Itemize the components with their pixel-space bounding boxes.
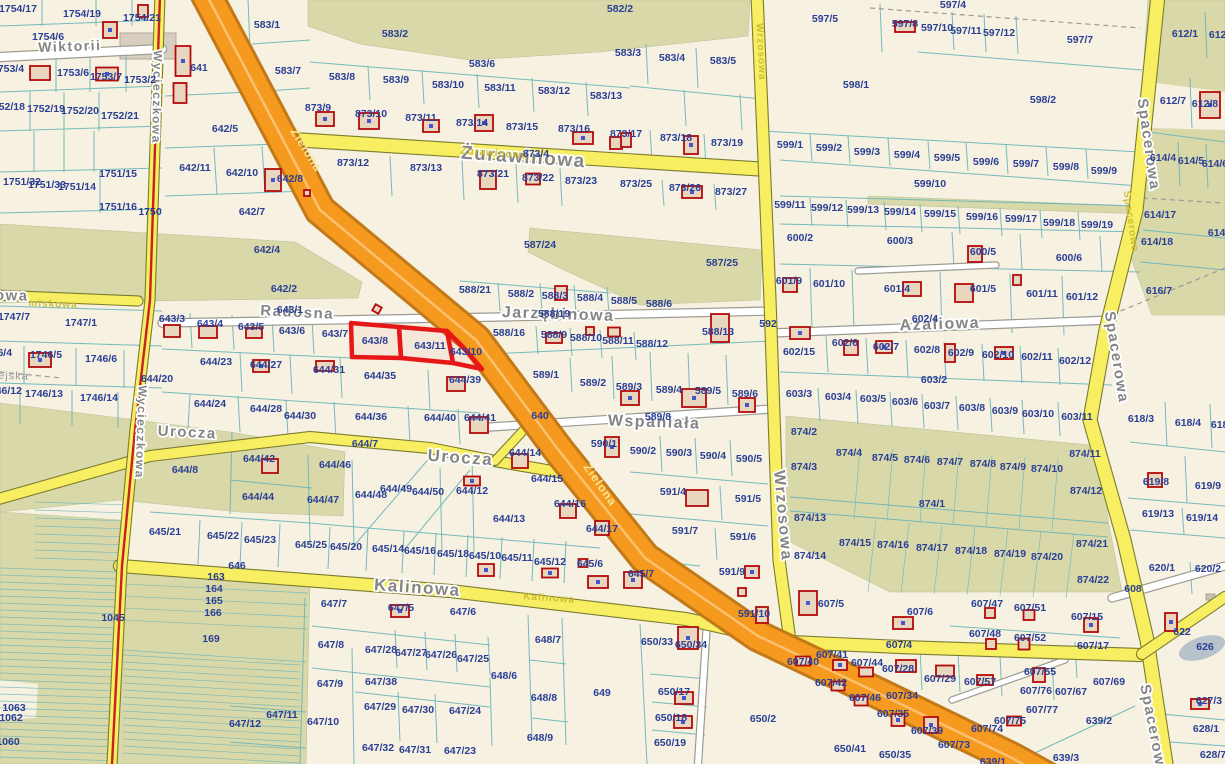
parcel-label: 874/10 <box>1031 463 1063 475</box>
address-point <box>470 479 474 483</box>
parcel-label: 873/19 <box>711 137 743 149</box>
parcel-label: 583/6 <box>469 58 495 70</box>
parcel-label: 603/8 <box>959 402 985 414</box>
parcel-label: 1746/6 <box>85 353 117 365</box>
parcel-label: 642/5 <box>212 123 238 135</box>
parcel-label: 588/10 <box>570 332 602 344</box>
building <box>588 576 608 588</box>
parcel-label: 643/3 <box>159 313 185 325</box>
parcel-label: 644/20 <box>141 373 173 385</box>
parcel-label: 1752/21 <box>101 110 139 122</box>
street-label: miskowa <box>28 298 78 311</box>
parcel-label: 620/2 <box>1195 563 1221 575</box>
parcel-label: 873/25 <box>620 178 652 190</box>
parcel-label: 647/28 <box>365 644 397 656</box>
building <box>103 22 117 38</box>
parcel-label: 642/4 <box>254 244 280 256</box>
parcel-label: 583/8 <box>329 71 355 83</box>
parcel-label: 602/9 <box>948 347 974 359</box>
parcel-label: 647/26 <box>425 649 457 661</box>
map-canvas[interactable]: WiktoriiŻurawinowaŻurawinowaJarzębinowaR… <box>0 0 1225 764</box>
parcel-label: 607/5 <box>818 598 844 610</box>
parcel-label: 644/7 <box>352 438 378 450</box>
parcel-label: 1746/14 <box>80 392 118 404</box>
cadastral-map[interactable]: WiktoriiŻurawinowaŻurawinowaJarzębinowaR… <box>0 0 1225 764</box>
parcel-label: 589/8 <box>645 411 671 423</box>
parcel-label: 599/10 <box>914 178 946 190</box>
parcel-label: 607/75 <box>994 715 1026 727</box>
parcel-label: 645/14 <box>372 543 404 555</box>
parcel-label: 599/6 <box>973 156 999 168</box>
parcel-label: 164 <box>205 583 223 595</box>
parcel-label: 600/5 <box>970 246 996 258</box>
parcel-label: 640 <box>531 410 549 422</box>
parcel-label: 873/14 <box>456 117 488 129</box>
parcel-label: 643/1 <box>277 304 303 316</box>
parcel-label: 597/7 <box>1067 34 1093 46</box>
parcel-label: 644/16 <box>554 498 586 510</box>
parcel-label: 645/23 <box>244 534 276 546</box>
parcel-label: 602/4 <box>912 313 938 325</box>
parcel-label: 1751/15 <box>99 168 137 180</box>
address-point <box>596 580 600 584</box>
parcel-label: 1750 <box>138 206 162 218</box>
parcel-label: 628/7 <box>1200 749 1225 761</box>
parcel-label: 588/11 <box>602 335 634 347</box>
parcel-label: 588/6 <box>646 298 672 310</box>
parcel-label: 619/14 <box>1186 512 1218 524</box>
parcel-label: 599/9 <box>1091 165 1117 177</box>
building <box>1013 275 1021 285</box>
parcel-label: 647/29 <box>364 701 396 713</box>
parcel-label: 592 <box>759 318 777 330</box>
parcel-label: 614/18 <box>1141 236 1173 248</box>
parcel-label: 644/13 <box>493 513 525 525</box>
parcel-label: 588/13 <box>702 326 734 338</box>
parcel-label: 597/11 <box>950 25 982 37</box>
parcel-label: 645/25 <box>295 539 327 551</box>
parcel-label: 644/46 <box>319 459 351 471</box>
parcel-label: 583/5 <box>710 55 736 67</box>
parcel-label: 1746/4 <box>0 347 12 359</box>
parcel-label: 650/17 <box>658 686 690 698</box>
parcel-label: 874/12 <box>1070 485 1102 497</box>
address-point <box>1169 620 1173 624</box>
parcel-label: 591/4 <box>660 486 686 498</box>
parcel-label: 597/5 <box>812 13 838 25</box>
address-point <box>838 663 842 667</box>
parcel-label: 603/7 <box>924 400 950 412</box>
parcel-label: 601/11 <box>1026 288 1058 300</box>
parcel-label: 588/9 <box>541 329 567 341</box>
parcel-label: 602/8 <box>914 344 940 356</box>
parcel-label: 645/21 <box>149 526 181 538</box>
street-label: Wycieczkowa <box>149 50 165 144</box>
parcel-label: 643/4 <box>197 318 223 330</box>
parcel-label: 607/77 <box>1026 704 1058 716</box>
parcel-label: 650/19 <box>654 737 686 749</box>
parcel-label: 645/7 <box>628 568 654 580</box>
parcel-label: 874/8 <box>970 458 996 470</box>
parcel-label: 587/25 <box>706 257 738 269</box>
parcel-label: 603/5 <box>860 393 886 405</box>
parcel-label: 607/76 <box>1020 685 1052 697</box>
parcel-label: 600/3 <box>887 235 913 247</box>
parcel-label: 619/9 <box>1195 480 1221 492</box>
parcel-label: 607/46 <box>849 692 881 704</box>
parcel-label: 601/12 <box>1066 291 1098 303</box>
parcel-label: 642/11 <box>179 162 211 174</box>
building <box>686 490 708 506</box>
address-point <box>181 59 185 63</box>
building <box>833 660 847 670</box>
parcel-label: 874/19 <box>994 548 1026 560</box>
parcel-label: 644/14 <box>509 447 541 459</box>
parcel-label: 873/9 <box>305 102 331 114</box>
parcel-label: 607/67 <box>1055 686 1087 698</box>
parcel-label: 599/14 <box>884 206 916 218</box>
parcel-label: 1062 <box>0 712 23 724</box>
parcel-label: 620/1 <box>1149 562 1175 574</box>
parcel-label: 647/24 <box>449 705 481 717</box>
parcel-label: 647/11 <box>266 709 298 721</box>
parcel-label: 1746/13 <box>25 388 63 400</box>
parcel-label: 644/24 <box>194 398 226 410</box>
parcel-label: 591/9 <box>719 566 745 578</box>
parcel-label: 1746/5 <box>30 349 62 361</box>
parcel-label: 607/39 <box>911 725 943 737</box>
parcel-label: 603/11 <box>1061 411 1093 423</box>
parcel-label: 603/10 <box>1022 408 1054 420</box>
parcel-label: 614/4 <box>1150 152 1176 164</box>
parcel-label: 597/12 <box>983 27 1015 39</box>
address-point <box>581 136 585 140</box>
parcel-label: 1045 <box>101 612 125 624</box>
parcel-label: 601/9 <box>776 275 802 287</box>
parcel-label: 588/12 <box>636 338 668 350</box>
parcel-label: 597/8 <box>892 18 918 30</box>
parcel-label: 583/12 <box>538 85 570 97</box>
parcel-label: 619/13 <box>1142 508 1174 520</box>
parcel-label: 644/28 <box>250 403 282 415</box>
parcel-label: 163 <box>207 571 225 583</box>
parcel-label: 599/19 <box>1081 219 1113 231</box>
parcel-label: 607/6 <box>907 606 933 618</box>
parcel-label: 647/10 <box>307 716 339 728</box>
parcel-label: 1751/14 <box>58 181 96 193</box>
parcel-label: 588/21 <box>459 284 491 296</box>
parcel-label: 607/29 <box>924 673 956 685</box>
parcel-label: 589/5 <box>695 385 721 397</box>
parcel-label: 874/6 <box>904 454 930 466</box>
parcel-label: 873/10 <box>355 108 387 120</box>
parcel-label: 603/2 <box>921 374 947 386</box>
parcel-label: 583/2 <box>382 28 408 40</box>
parcel-label: 643/5 <box>238 321 264 333</box>
parcel-label: 603/4 <box>825 391 851 403</box>
parcel-label: 618/3 <box>1128 413 1154 425</box>
parcel-label: 588/16 <box>493 327 525 339</box>
parcel-label: 589/6 <box>732 388 758 400</box>
parcel-label: 643/7 <box>322 328 348 340</box>
parcel-label: 607/42 <box>815 677 847 689</box>
parcel-label: 646 <box>228 560 246 572</box>
parcel-label: 599/11 <box>774 199 806 211</box>
parcel-label: 588/3 <box>542 290 568 302</box>
address-point <box>429 124 433 128</box>
parcel-label: 600/2 <box>787 232 813 244</box>
parcel-label: 607/4 <box>886 639 912 651</box>
parcel-label: 1747/1 <box>65 317 97 329</box>
parcel-label: 602/10 <box>982 349 1014 361</box>
parcel-label: 607/48 <box>969 628 1001 640</box>
parcel-label: 618/4 <box>1175 417 1201 429</box>
address-point <box>798 331 802 335</box>
parcel-label: 874/20 <box>1031 551 1063 563</box>
parcel-label: 873/23 <box>565 175 597 187</box>
building <box>478 564 494 576</box>
parcel-label: 618/5 <box>1211 419 1225 431</box>
parcel-label: 645/11 <box>501 552 533 564</box>
parcel-label: 650/33 <box>641 636 673 648</box>
parcel-label: 1752/20 <box>61 105 99 117</box>
parcel-label: 607/40 <box>787 656 819 668</box>
parcel-label: 650/41 <box>834 743 866 755</box>
parcel-label: 1754/21 <box>123 12 161 24</box>
parcel-label: 1746/12 <box>0 385 22 397</box>
parcel-label: 647/12 <box>229 718 261 730</box>
parcel-label: 873/18 <box>660 132 692 144</box>
parcel-label: 607/52 <box>1014 632 1046 644</box>
parcel-label: 599/5 <box>934 152 960 164</box>
parcel-label: 644/17 <box>586 523 618 535</box>
parcel-label: 642/2 <box>271 283 297 295</box>
parcel-label: 644/44 <box>242 491 274 503</box>
parcel-label: 607/47 <box>971 598 1003 610</box>
parcel-label: 643/11 <box>414 340 446 352</box>
parcel-label: 650/2 <box>750 713 776 725</box>
parcel-label: 647/5 <box>388 602 414 614</box>
parcel-label: 874/22 <box>1077 574 1109 586</box>
address-point <box>271 178 275 182</box>
parcel-label: 873/12 <box>337 157 369 169</box>
parcel-label: 588/5 <box>611 295 637 307</box>
parcel-label: 1754/17 <box>0 3 37 15</box>
parcel-label: 873/22 <box>522 172 554 184</box>
parcel-label: 607/41 <box>816 649 848 661</box>
address-point <box>806 601 810 605</box>
parcel-label: 648/6 <box>491 670 517 682</box>
parcel-label: 607/28 <box>882 663 914 675</box>
parcel-label: 166 <box>204 607 222 619</box>
parcel-label: 644/27 <box>250 359 282 371</box>
parcel-label: 589/2 <box>580 377 606 389</box>
parcel-label: 165 <box>205 595 223 607</box>
parcel-label: 874/7 <box>937 456 963 468</box>
building <box>986 639 996 649</box>
street-label: Urocza <box>157 422 217 442</box>
parcel-label: 589/3 <box>616 381 642 393</box>
street-label: Miskowa <box>0 286 29 304</box>
parcel-label: 639/3 <box>1053 752 1079 764</box>
parcel-label: 614/6 <box>1202 158 1225 170</box>
parcel-label: 599/17 <box>1005 213 1037 225</box>
address-point <box>108 28 112 32</box>
parcel-label: 874/14 <box>794 550 826 562</box>
parcel-label: 647/25 <box>457 653 489 665</box>
parcel-label: 601/5 <box>970 283 996 295</box>
parcel-label: 648/9 <box>527 732 553 744</box>
parcel-label: 607/44 <box>851 657 883 669</box>
parcel-label: 873/17 <box>610 128 642 140</box>
parcel-label: 1751/16 <box>99 201 137 213</box>
parcel-label: 599/4 <box>894 149 920 161</box>
parcel-label: 583/7 <box>275 65 301 77</box>
parcel-label: 644/50 <box>412 486 444 498</box>
parcel-label: 873/13 <box>410 162 442 174</box>
parcel-label: 1754/19 <box>63 8 101 20</box>
parcel-label: 873/26 <box>669 182 701 194</box>
parcel-label: 1060 <box>0 736 20 748</box>
parcel-label: 647/8 <box>318 639 344 651</box>
parcel-label: 642/8 <box>277 173 303 185</box>
building <box>790 327 810 339</box>
parcel-label: 639/1 <box>980 756 1006 764</box>
parcel-label: 648/7 <box>535 634 561 646</box>
parcel-label: 644/40 <box>424 412 456 424</box>
parcel-label: 599/2 <box>816 142 842 154</box>
parcel-label: 600/6 <box>1056 252 1082 264</box>
parcel-label: 645/20 <box>330 541 362 553</box>
parcel-label: 599/12 <box>811 202 843 214</box>
parcel-label: 647/32 <box>362 742 394 754</box>
parcel-label: 622 <box>1173 626 1191 638</box>
parcel-label: 647/30 <box>402 704 434 716</box>
parcel-label: 602/6 <box>832 337 858 349</box>
parcel-label: 583/3 <box>615 47 641 59</box>
parcel-label: 588/4 <box>577 292 603 304</box>
parcel-label: 607/73 <box>938 739 970 751</box>
parcel-label: 607/15 <box>1071 611 1103 623</box>
address-point <box>750 570 754 574</box>
parcel-label: 583/1 <box>254 19 280 31</box>
parcel-label: 1753/4 <box>0 63 24 75</box>
parcel-label: 1752/19 <box>27 103 65 115</box>
parcel-label: 588/2 <box>508 288 534 300</box>
parcel-label: 591/7 <box>672 525 698 537</box>
building <box>893 617 913 629</box>
building <box>739 398 755 412</box>
parcel-label: 590/4 <box>700 450 726 462</box>
address-point <box>628 396 632 400</box>
parcel-label: 643/10 <box>450 346 482 358</box>
parcel-label: 607/51 <box>1014 602 1046 614</box>
parcel-label: 644/23 <box>200 356 232 368</box>
parcel-label: 874/21 <box>1076 538 1108 550</box>
parcel-label: 607/35 <box>877 708 909 720</box>
building <box>316 112 334 126</box>
parcel-label: 601/4 <box>884 283 910 295</box>
parcel-label: 644/8 <box>172 464 198 476</box>
parcel-label: 644/36 <box>355 411 387 423</box>
parcel-label: 874/9 <box>1000 461 1026 473</box>
parcel-label: 583/13 <box>590 90 622 102</box>
parcel-label: 644/39 <box>449 374 481 386</box>
parcel-label: 628/1 <box>1193 723 1219 735</box>
parcel-label: 645/12 <box>534 556 566 568</box>
building <box>799 591 817 615</box>
parcel-label: 1754/6 <box>32 31 64 43</box>
parcel-label: 599/7 <box>1013 158 1039 170</box>
building <box>164 325 180 337</box>
parcel-label: 644/12 <box>456 485 488 497</box>
parcel-label: 597/4 <box>940 0 966 11</box>
parcel-label: 607/69 <box>1093 676 1125 688</box>
parcel-label: 647/9 <box>317 678 343 690</box>
parcel-label: 647/27 <box>395 647 427 659</box>
parcel-label: 602/11 <box>1021 351 1053 363</box>
parcel-label: 619/8 <box>1143 476 1169 488</box>
parcel-label: 1752/18 <box>0 101 25 113</box>
parcel-label: 650/34 <box>675 639 707 651</box>
parcel-label: 645/6 <box>577 558 603 570</box>
parcel-label: 645/16 <box>404 545 436 557</box>
building <box>176 46 191 76</box>
parcel-label: 591/10 <box>738 608 770 620</box>
parcel-label: 169 <box>202 633 220 645</box>
parcel-label: 649 <box>593 687 611 699</box>
parcel-label: 650/18 <box>655 712 687 724</box>
building <box>30 66 50 80</box>
parcel-label: 873/15 <box>506 121 538 133</box>
parcel-label: 627/3 <box>1196 695 1222 707</box>
street-label: Wiejska <box>0 369 29 383</box>
parcel-label: 873/21 <box>477 168 509 180</box>
parcel-label: 874/2 <box>791 426 817 438</box>
parcel-label: 874/16 <box>877 539 909 551</box>
building <box>304 190 310 196</box>
parcel-label: 874/3 <box>791 461 817 473</box>
parcel-label: 647/23 <box>444 745 476 757</box>
parcel-label: 599/3 <box>854 146 880 158</box>
parcel-label: 639/2 <box>1086 715 1112 727</box>
building <box>174 83 187 103</box>
parcel-label: 614/17 <box>1144 209 1176 221</box>
building <box>542 569 558 578</box>
building <box>738 588 746 596</box>
parcel-label: 598/2 <box>1030 94 1056 106</box>
parcel-label: 597/10 <box>921 22 953 34</box>
parcel-label: 607/17 <box>1077 640 1109 652</box>
parcel-label: 644/47 <box>307 494 339 506</box>
parcel-label: 599/13 <box>847 204 879 216</box>
parcel-label: 583/10 <box>432 79 464 91</box>
parcel-label: 590/3 <box>666 447 692 459</box>
parcel-label: 642/10 <box>226 167 258 179</box>
parcel-label: 873/4 <box>523 148 549 160</box>
parcel-label: 1753/7 <box>90 71 122 83</box>
parcel-label: 644/30 <box>284 410 316 422</box>
parcel-label: 647/31 <box>399 744 431 756</box>
parcel-label: 643/6 <box>279 325 305 337</box>
parcel-label: 645/10 <box>469 550 501 562</box>
parcel-label: 874/11 <box>1069 448 1101 460</box>
parcel-label: 644/31 <box>313 364 345 376</box>
address-point <box>1089 623 1093 627</box>
parcel-label: 612/2 <box>1209 29 1225 41</box>
parcel-label: 643/8 <box>362 335 388 347</box>
parcel-label: 591/5 <box>735 493 761 505</box>
